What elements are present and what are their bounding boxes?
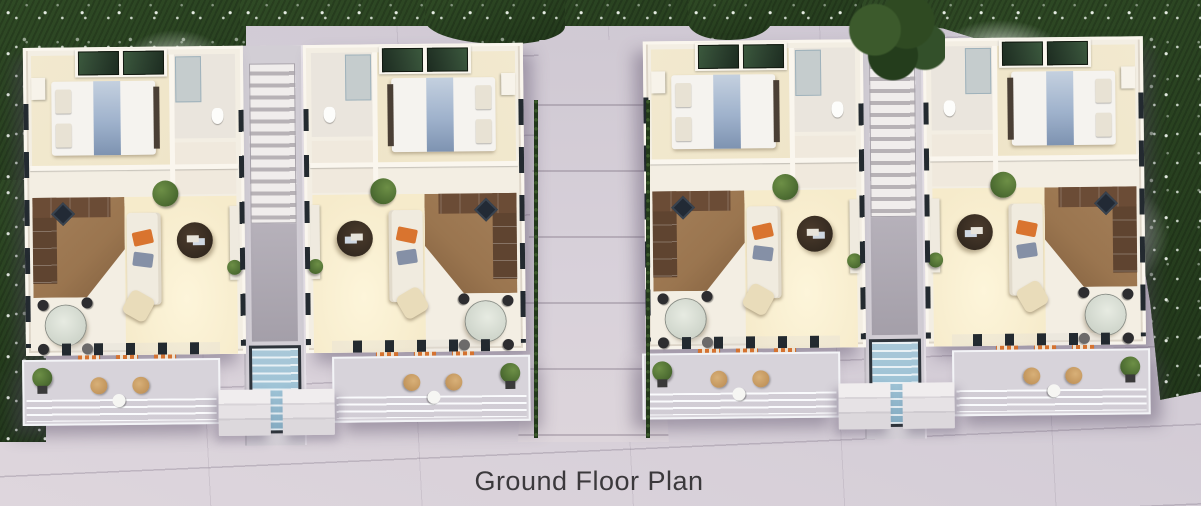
- balcony-side-table: [112, 394, 125, 407]
- dining-chair: [658, 337, 669, 348]
- entrance-steps: [838, 383, 890, 430]
- plan-caption: Ground Floor Plan: [389, 466, 789, 497]
- balcony-side-table: [732, 387, 745, 400]
- dining-table: [1085, 295, 1125, 335]
- toilet: [943, 100, 955, 116]
- shower-enclosure: [965, 48, 991, 94]
- orange-cushion: [751, 222, 774, 240]
- plant-pot: [37, 386, 47, 394]
- balcony: [952, 348, 1151, 416]
- pillow: [56, 124, 72, 148]
- blue-cushion: [396, 249, 418, 266]
- basement-stairwell: [241, 45, 307, 446]
- double-bed: [51, 81, 156, 156]
- balcony: [332, 355, 531, 423]
- pillow: [476, 119, 492, 143]
- dining-table: [46, 305, 86, 345]
- dining-chair: [503, 339, 514, 350]
- entrance-steps: [282, 389, 334, 436]
- dining-chair: [1123, 332, 1134, 343]
- bed-footboard: [773, 80, 780, 142]
- wardrobe-mirrored-doors: [379, 45, 471, 74]
- exterior-stairs: [249, 63, 297, 223]
- blue-cushion: [1016, 242, 1038, 259]
- bed-footboard: [153, 87, 160, 149]
- pillow: [1095, 79, 1111, 103]
- dining-chair: [458, 293, 469, 304]
- dining-chair: [1122, 288, 1133, 299]
- pillow: [675, 83, 691, 107]
- dining-chair: [701, 291, 712, 302]
- wardrobe-mirrored-doors: [75, 49, 167, 78]
- orange-cushion: [132, 229, 155, 247]
- bed-runner: [93, 81, 121, 155]
- orange-cushion: [396, 226, 418, 244]
- wicker-chair: [710, 371, 727, 388]
- shower-enclosure: [345, 54, 371, 100]
- bed-runner: [427, 78, 455, 152]
- hedge-strip: [534, 100, 538, 438]
- unit-2: [303, 43, 527, 445]
- tree-canopy: [845, 0, 945, 85]
- entrance-steps: [218, 389, 270, 436]
- plant-pot: [505, 381, 515, 389]
- bed-runner: [713, 75, 741, 149]
- entrance-steps: [902, 382, 954, 429]
- dining-chair: [657, 293, 668, 304]
- ground-floor-plan-render: Ground Floor Plan: [0, 0, 1201, 506]
- dining-chair: [37, 300, 48, 311]
- shower-enclosure: [795, 50, 821, 96]
- plant-pot: [1125, 374, 1135, 382]
- toilet: [831, 101, 843, 117]
- bed-footboard: [387, 84, 394, 146]
- coffee-table: [177, 222, 213, 258]
- toilet: [323, 107, 335, 123]
- plant-pot: [657, 379, 667, 387]
- coffee-table: [957, 214, 993, 250]
- bedside-dresser: [1121, 66, 1135, 88]
- coffee-table: [337, 220, 373, 256]
- unit-1: [23, 46, 247, 448]
- potted-plant: [370, 178, 396, 204]
- bedside-dresser: [501, 73, 515, 95]
- wicker-chair: [1065, 367, 1082, 384]
- double-bed: [1011, 71, 1116, 146]
- stair-pit: [871, 217, 918, 335]
- wicker-chair: [752, 370, 769, 387]
- potted-plant: [308, 259, 323, 274]
- bed-footboard: [1007, 78, 1014, 140]
- bed-runner: [1046, 71, 1074, 145]
- wicker-chair: [90, 377, 107, 394]
- balcony: [642, 351, 841, 419]
- dining-chair: [502, 295, 513, 306]
- potted-plant: [772, 174, 798, 200]
- potted-plant: [990, 172, 1016, 198]
- coffee-table: [797, 216, 833, 252]
- pillow: [475, 85, 491, 109]
- wicker-chair: [132, 377, 149, 394]
- wicker-chair: [1023, 367, 1040, 384]
- dining-chair: [38, 344, 49, 355]
- dining-table: [665, 299, 705, 339]
- dining-chair: [81, 297, 92, 308]
- building-row: [0, 0, 1201, 506]
- blue-cushion: [132, 252, 154, 268]
- balcony-side-table: [1047, 384, 1060, 397]
- blue-cushion: [752, 245, 774, 261]
- pillow: [1096, 113, 1112, 137]
- pillow: [676, 117, 692, 141]
- wardrobe-mirrored-doors: [695, 42, 787, 71]
- shower-enclosure: [175, 56, 201, 102]
- basement-stairwell: [861, 39, 927, 440]
- potted-plant: [152, 180, 178, 206]
- pillow: [55, 90, 71, 114]
- toilet: [211, 108, 223, 124]
- dining-table: [465, 301, 505, 341]
- terrace-door-frames: [62, 342, 220, 356]
- dining-chair: [1078, 287, 1089, 298]
- double-bed: [391, 77, 496, 152]
- wicker-chair: [403, 374, 420, 391]
- balcony: [22, 358, 221, 426]
- unit-4: [923, 36, 1147, 438]
- bedside-dresser: [31, 78, 45, 100]
- unit-3: [643, 39, 867, 441]
- stair-pit: [251, 223, 298, 341]
- hedge-strip: [646, 100, 650, 438]
- double-bed: [671, 74, 776, 149]
- orange-cushion: [1016, 220, 1038, 238]
- terrace-door-frames: [682, 335, 840, 349]
- balcony-side-table: [427, 391, 440, 404]
- bedside-dresser: [651, 71, 665, 93]
- wardrobe-mirrored-doors: [999, 39, 1091, 68]
- potted-plant: [928, 252, 943, 267]
- wicker-chair: [445, 373, 462, 390]
